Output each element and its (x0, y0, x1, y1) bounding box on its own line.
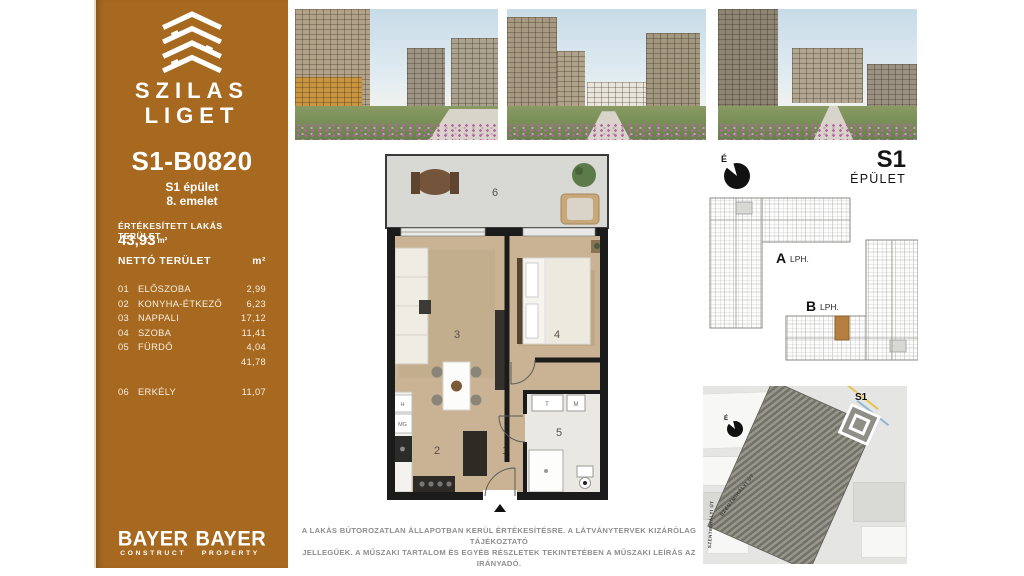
unit-id: S1-B0820 (96, 146, 288, 177)
sold-area-unit: m² (158, 236, 168, 245)
flower-bed (718, 123, 917, 140)
brand-line1: SZILAS (96, 78, 288, 103)
net-area-subtotal: 41,78 (118, 355, 266, 369)
net-area-table: NETTÓ TERÜLET m² 01 ELŐSZOBA 2,99 02 KON… (118, 255, 266, 399)
room-number-living: 3 (454, 329, 460, 341)
bayer-construct-logo: BAYER CONSTRUCT (118, 530, 189, 557)
wing-a-label: A (776, 250, 786, 266)
svg-text:É: É (724, 414, 728, 422)
bayer-property-logo: BAYER PROPERTY (196, 530, 267, 557)
building-render (557, 51, 585, 111)
brand-line2: LIGET (96, 103, 288, 128)
north-compass-icon: É (721, 412, 747, 440)
unit-building: S1 épület (96, 180, 288, 194)
room-number-bedroom: 4 (554, 329, 560, 341)
map-block (861, 526, 907, 558)
room-number-balcony: 6 (492, 187, 498, 199)
table-row: 04 SZOBA 11,41 (118, 326, 266, 340)
sold-area-value: 43,93m² (118, 232, 167, 249)
table-header-label: NETTÓ TERÜLET (118, 255, 252, 269)
render-photo-2 (507, 9, 706, 140)
room-number-bathroom: 5 (556, 427, 562, 439)
site-map: S1 É SZENTMIHÁLYI ÚT SZENTMIHÁLYI ÚT (703, 386, 907, 564)
flower-bed (507, 123, 706, 140)
building-render (407, 48, 446, 108)
building-title: S1 ÉPÜLET (810, 148, 906, 186)
dishwasher-label: MG (398, 422, 407, 428)
render-photo-1 (295, 9, 498, 140)
flower-bed (295, 123, 498, 140)
fridge-label: H (401, 402, 405, 408)
table-row: 05 FÜRDŐ 4,04 (118, 340, 266, 354)
room-number-kitchen: 2 (434, 445, 440, 457)
table-subtotal-row: 41,78 (118, 355, 266, 369)
brand-wordmark: SZILAS LIGET (96, 78, 288, 128)
bedroom-window (523, 228, 595, 236)
table-row: 03 NAPPALI 17,12 (118, 311, 266, 325)
building-render (451, 38, 498, 110)
tv-cabinet (495, 310, 505, 390)
render-photo-3 (718, 9, 917, 140)
s1-map-label: S1 (855, 392, 867, 403)
building-render (646, 33, 700, 112)
roof-logo-icon (96, 10, 288, 81)
washer-label: M (574, 402, 579, 408)
sink-label: T (545, 402, 549, 408)
apartment-floorplan: 6 3 4 H MG 2 (383, 152, 613, 514)
hall-wardrobe (463, 431, 487, 476)
entrance-arrow-icon (494, 504, 506, 512)
developer-logos: BAYER CONSTRUCT BAYER PROPERTY (96, 530, 288, 557)
north-compass-icon: É (714, 150, 756, 194)
balcony-table (416, 169, 454, 195)
table-row: 01 ELŐSZOBA 2,99 (118, 282, 266, 296)
map-block (853, 482, 905, 522)
datasheet-page: SZILAS LIGET S1-B0820 S1 épület 8. emele… (0, 0, 1024, 576)
building-render (867, 64, 917, 106)
headboard (517, 258, 523, 344)
table-row-balcony: 06 ERKÉLY 11,07 (118, 385, 266, 399)
toilet (577, 466, 593, 477)
entrance-opening (483, 490, 517, 502)
building-title-code: S1 (810, 148, 906, 172)
table-row: 02 KONYHA-ÉTKEZŐ 6,23 (118, 297, 266, 311)
wing-a-suffix: LPH. (790, 254, 809, 264)
table-header-unit: m² (252, 255, 266, 269)
building-render (507, 17, 557, 113)
disclaimer-text: A LAKÁS BÚTOROZATLAN ÁLLAPOTBAN KERÜL ÉR… (293, 525, 705, 569)
building-level-plan: A LPH. B LPH. (702, 192, 918, 370)
building-title-word: ÉPÜLET (810, 172, 906, 186)
sidebar-panel: SZILAS LIGET S1-B0820 S1 épület 8. emele… (94, 0, 288, 568)
svg-text:É: É (721, 154, 727, 164)
wing-b-label: B (806, 298, 816, 314)
unit-floor: 8. emelet (96, 194, 288, 208)
table-header: NETTÓ TERÜLET m² (118, 255, 266, 269)
building-render (718, 9, 778, 119)
building-render (792, 48, 864, 103)
highlighted-apartment (835, 316, 849, 340)
plant (572, 163, 596, 187)
wing-b-suffix: LPH. (820, 302, 839, 312)
